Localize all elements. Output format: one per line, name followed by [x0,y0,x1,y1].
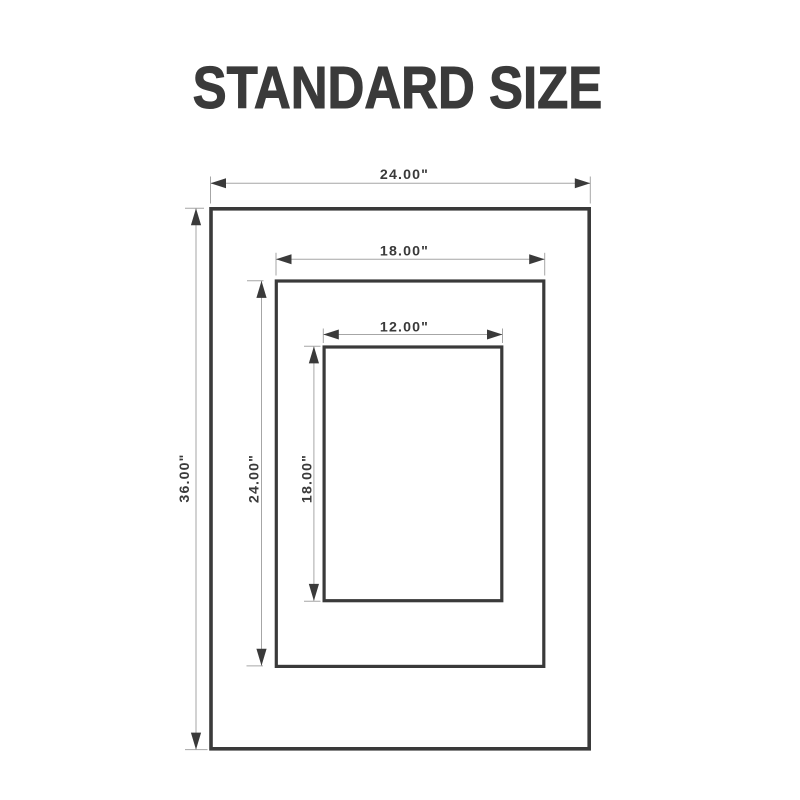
svg-text:24.00": 24.00" [247,454,263,503]
svg-text:STANDARD SIZE: STANDARD SIZE [193,54,603,121]
svg-text:12.00": 12.00" [380,319,429,335]
svg-text:18.00": 18.00" [300,454,316,503]
svg-text:18.00": 18.00" [380,244,429,260]
svg-text:36.00": 36.00" [177,453,193,502]
svg-text:24.00": 24.00" [380,167,429,183]
